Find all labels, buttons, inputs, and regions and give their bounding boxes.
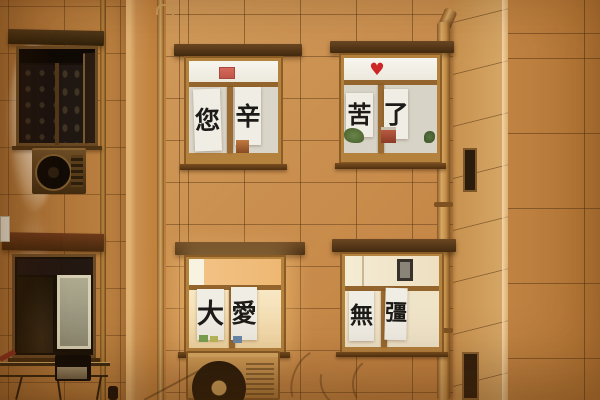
pipe-hook xyxy=(156,4,174,15)
ac-unit-upper xyxy=(32,148,86,194)
calligraphy-character: 無 xyxy=(350,305,373,328)
side-wall-face xyxy=(453,0,508,400)
pipe-bracket xyxy=(434,202,453,207)
storage-box xyxy=(55,355,91,381)
calligraphy-character: 您 xyxy=(195,107,221,133)
plant-icon xyxy=(424,131,435,143)
wall-vent-upper xyxy=(463,148,477,192)
tile-grout-lines xyxy=(453,0,508,400)
windowsill-object xyxy=(236,140,249,153)
frosted-lit-pane xyxy=(57,275,91,349)
conduit-pipe-left xyxy=(100,0,106,400)
paper-banner: 大 xyxy=(197,289,224,340)
picture-frame xyxy=(397,259,413,281)
calligraphy-character: 苦 xyxy=(348,103,372,127)
wall-fixture xyxy=(0,216,10,242)
plant-icon xyxy=(344,128,364,143)
window-awning xyxy=(330,41,454,53)
calligraphy-character: 彊 xyxy=(385,303,408,326)
paper-banner: 辛 xyxy=(235,87,261,145)
window-dark-lower xyxy=(12,254,96,358)
storage-box-front xyxy=(57,367,87,379)
paper-tag xyxy=(210,336,218,342)
calligraphy-character: 了 xyxy=(384,102,409,127)
calligraphy-character: 愛 xyxy=(231,301,256,326)
transom-pane xyxy=(344,58,437,80)
china-flag-sticker-icon xyxy=(219,67,235,79)
paper-banner: 彊 xyxy=(384,288,407,341)
window-sill xyxy=(335,163,446,169)
heart-icon: ♥ xyxy=(366,60,388,80)
window-mullion xyxy=(227,87,233,153)
fan-grille-icon xyxy=(192,361,246,400)
calligraphy-character: 大 xyxy=(197,301,224,328)
window-awning xyxy=(174,44,302,56)
window-awning xyxy=(332,239,456,252)
window-awning xyxy=(2,232,104,252)
paper-banner: 您 xyxy=(193,89,222,152)
right-wall-face xyxy=(508,0,600,400)
window-sill xyxy=(180,164,287,170)
dim-interior xyxy=(17,277,53,353)
small-object xyxy=(108,386,118,400)
transom-pane xyxy=(189,259,281,285)
window-mullion xyxy=(55,63,59,145)
conduit-pipe-mid xyxy=(157,0,164,400)
calligraphy-character: 辛 xyxy=(235,104,260,129)
window-awning xyxy=(8,29,104,46)
ac-vents xyxy=(246,363,274,395)
transom-pane xyxy=(345,256,439,286)
window-awning xyxy=(175,242,305,255)
paper-tag xyxy=(233,336,242,343)
building-facade-photo: 您 辛 ♥ 苦 了 大 愛 無 彊 xyxy=(0,0,600,400)
paper-tag xyxy=(199,335,208,342)
ac-vents xyxy=(71,155,83,187)
metal-rack-rail xyxy=(0,375,108,377)
curtain xyxy=(21,65,55,143)
ac-unit-bottom xyxy=(186,351,280,400)
window-dark-upper xyxy=(16,46,98,146)
open-sash xyxy=(83,52,95,143)
transom-pane xyxy=(17,259,93,275)
paper-banner: 無 xyxy=(349,291,374,341)
wall-vent-lower xyxy=(462,352,479,400)
interior-door-frame xyxy=(362,256,364,286)
flower-pot xyxy=(381,127,396,143)
paper-banner: 愛 xyxy=(231,287,257,340)
fan-grille-icon xyxy=(35,154,72,191)
